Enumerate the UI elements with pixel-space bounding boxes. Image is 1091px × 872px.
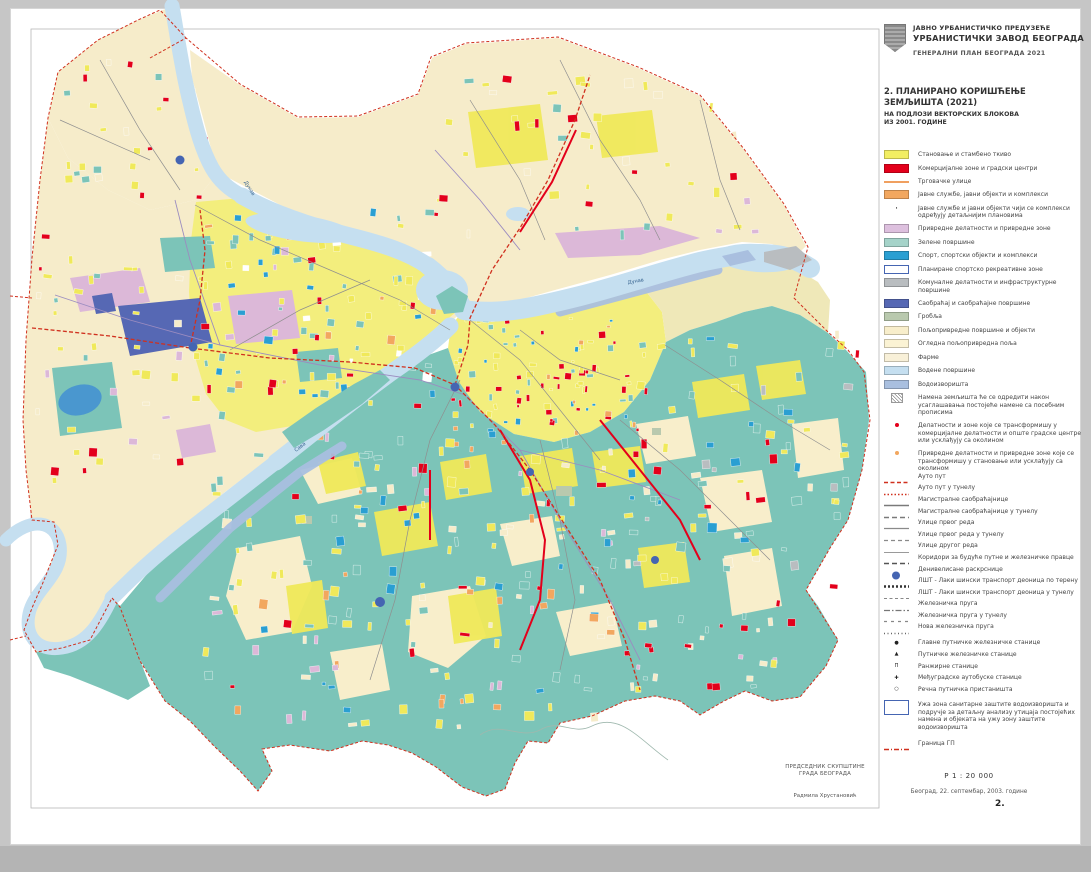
dot-swatch (895, 423, 899, 427)
legend-station-label: Речна путничка пристаништа (918, 686, 1013, 694)
color-swatch (884, 339, 909, 348)
legend-area-label: Планиране спортско рекреативне зоне (918, 265, 1043, 274)
legend-area-item: Комерцијалне зоне и градски центри (884, 164, 1086, 173)
legend-area-item: Комуналне делатности и инфраструктурне п… (884, 278, 1086, 294)
legend-line-label: Железничка пруга (918, 600, 978, 608)
legend-line-label: Коридори за будуће путне и железничке пр… (918, 554, 1074, 562)
legend-line-item: Магистралне саобраћајнице (884, 495, 1086, 504)
legend-area-item: ·Јавне службе и јавни објекти чији се ко… (884, 204, 1086, 220)
legend-gp-boundary-item: Граница ГП (884, 739, 1086, 748)
station-symbol-icon: ○ (884, 685, 909, 694)
dash-dot-line-swatch (884, 600, 909, 609)
map-title-block: 2. ПЛАНИРАНО КОРИШЋЕЊЕ ЗЕМЉИШТА (2021) Н… (884, 86, 1084, 127)
legend-note-item: Намена земљишта ће се одредити након уса… (884, 393, 1086, 417)
legend-area-label: Фарме (918, 353, 939, 362)
color-swatch (884, 150, 909, 159)
legend-area-label: Трговачке улице (918, 177, 971, 186)
color-swatch (884, 224, 909, 233)
color-swatch (884, 190, 909, 199)
legend-area-label: Јавне службе, јавни објекти и комплекси (918, 190, 1048, 199)
station-symbol-icon: ✚ (884, 674, 909, 683)
urban-institute-logo-icon (884, 24, 906, 52)
legend-line-list: Ауто путАуто пут у тунелуМагистралне сао… (884, 472, 1086, 751)
color-swatch (884, 380, 909, 389)
dash-sm-line-swatch (884, 530, 909, 539)
legend-area-item: Јавне службе, јавни објекти и комплекси (884, 190, 1086, 199)
publisher-header: ЈАВНО УРБАНИСТИЧКО ПРЕДУЗЕЋЕ УРБАНИСТИЧК… (884, 24, 1086, 57)
color-swatch (884, 312, 909, 321)
legend-line-label: Железничка пруга у тунелу (918, 612, 1007, 620)
color-swatch (884, 366, 909, 375)
legend-note-label: Привредне делатности и привредне зоне ко… (918, 449, 1086, 473)
legend-area-item: Водоизворишта (884, 380, 1086, 389)
legend-panel: ЈАВНО УРБАНИСТИЧКО ПРЕДУЗЕЋЕ УРБАНИСТИЧК… (884, 24, 1086, 57)
legend-line-item: Нова железничка пруга (884, 623, 1086, 632)
color-swatch (884, 251, 909, 260)
dot-red-icon (884, 421, 909, 430)
legend-line-label: ЛШТ - Лаки шински транспорт деоница у ту… (918, 589, 1074, 597)
legend-area-label: Спорт, спортски објекти и комплекси (918, 251, 1037, 260)
page-number: 2. (995, 799, 1005, 809)
footer-block: Р 1 : 20 000 Београд, 22. септембар, 200… (884, 772, 1054, 795)
map-title-line1: 2. ПЛАНИРАНО КОРИШЋЕЊЕ (884, 86, 1084, 97)
legend-line-label: Нова железничка пруга (918, 623, 994, 631)
signature-title-line2: ГРАДА БЕОГРАДА (766, 771, 884, 778)
color-swatch (884, 326, 909, 335)
map-subtitle-line2: ИЗ 2001. ГОДИНЕ (884, 119, 1084, 127)
dot-orange-icon (884, 449, 909, 458)
legend-line-label: ЛШТ - Лаки шински транспорт деоница по т… (918, 577, 1078, 585)
legend-line-label: Денивелисане раскрснице (918, 566, 1003, 574)
legend-note-label: Намена земљишта ће се одредити након уса… (918, 393, 1086, 417)
legend-area-item: Фарме (884, 353, 1086, 362)
legend-area-item: Гробља (884, 312, 1086, 321)
fine-dash-line-swatch (884, 588, 909, 597)
gp-boundary-swatch (884, 739, 909, 748)
street-line-swatch (884, 181, 909, 183)
legend-area-label: Саобраћај и саобраћајне површине (918, 299, 1030, 308)
protection-zone-swatch (884, 700, 909, 715)
publisher-line1: ЈАВНО УРБАНИСТИЧКО ПРЕДУЗЕЋЕ (913, 24, 1084, 32)
station-symbol-icon: ▲ (884, 650, 909, 659)
legend-area-item: Трговачке улице (884, 177, 1086, 186)
legend-area-label: Водоизворишта (918, 380, 968, 389)
bold-dot-line-swatch (884, 576, 909, 585)
color-swatch (884, 353, 909, 362)
legend-station-label: Путничке железничке станице (918, 651, 1017, 659)
legend-note-label: Делатности и зоне које се трансформишу у… (918, 421, 1086, 445)
legend-area-label: Комерцијалне зоне и градски центри (918, 164, 1037, 173)
legend-line-item: Коридори за будуће путне и железничке пр… (884, 553, 1086, 562)
legend-line-item: Улице другог реда (884, 542, 1086, 551)
legend-area-item: Пољопривредне површине и објекти (884, 326, 1086, 335)
legend-area-label: Комуналне делатности и инфраструктурне п… (918, 278, 1086, 294)
legend-area-label: Привредне делатности и привредне зоне (918, 224, 1051, 233)
legend-note-list: Намена земљишта ће се одредити након уса… (884, 393, 1086, 473)
circle-line-swatch (884, 565, 909, 574)
legend-area-label: Гробља (918, 312, 942, 321)
solid-sm-line-swatch (884, 518, 909, 527)
legend-line-item: Улице првог реда у тунелу (884, 530, 1086, 539)
legend-line-item: ЛШТ - Лаки шински транспорт деоница по т… (884, 576, 1086, 585)
solid-xs-line-swatch (884, 542, 909, 551)
solid-md-line-swatch (884, 495, 909, 504)
legend-line-label: Ауто пут (918, 473, 946, 481)
dash-dark-line-swatch (884, 553, 909, 562)
legend-station-label: Ранжирне станице (918, 663, 978, 671)
color-swatch (884, 238, 909, 247)
gp-boundary-label: Граница ГП (918, 740, 955, 748)
legend-station-item: ●Главне путничке железничке станице (884, 639, 1086, 648)
plan-name: ГЕНЕРАЛНИ ПЛАН БЕОГРАДА 2021 (913, 50, 1084, 57)
legend-note-item: Привредне делатности и привредне зоне ко… (884, 449, 1086, 473)
legend-line-item: Улице првог реда (884, 518, 1086, 527)
legend-line-item: Ауто пут у тунелу (884, 484, 1086, 493)
legend-area-item: Привредне делатности и привредне зоне (884, 224, 1086, 233)
color-swatch (884, 265, 909, 274)
color-swatch (884, 164, 909, 173)
legend-line-item: Ауто пут (884, 472, 1086, 481)
legend-protection-zone-item: Ужа зона санитарне заштите водоизворишта… (884, 700, 1086, 731)
legend-station-item: ✚Међуградске аутобуске станице (884, 674, 1086, 683)
legend-station-label: Међуградске аутобуске станице (918, 674, 1022, 682)
legend-line-label: Ауто пут у тунелу (918, 484, 975, 492)
map-subtitle-line1: НА ПОДЛОЗИ ВЕКТОРСКИХ БЛОКОВА (884, 111, 1084, 119)
legend-area-label: Водене површине (918, 366, 975, 375)
detail-plan-symbol: · (884, 204, 909, 213)
legend-area-item: Становање и стамбено ткиво (884, 150, 1086, 159)
station-symbol-icon: ● (884, 639, 909, 648)
hatch-swatch (891, 393, 903, 403)
legend-area-item: Саобраћај и саобраћајне површине (884, 299, 1086, 308)
legend-area-item: Планиране спортско рекреативне зоне (884, 265, 1086, 274)
legend-area-label: Становање и стамбено ткиво (918, 150, 1011, 159)
legend-area-label: Огледна пољопривредна поља (918, 339, 1017, 348)
legend-line-item: Магистралне саобраћајнице у тунелу (884, 507, 1086, 516)
legend-station-label: Главне путничке железничке станице (918, 639, 1040, 647)
legend-area-list: Становање и стамбено ткивоКомерцијалне з… (884, 150, 1086, 477)
protection-zone-label: Ужа зона санитарне заштите водоизворишта… (918, 700, 1086, 731)
signature-title-line1: ПРЕДСЕДНИК СКУПШТИНЕ (766, 764, 884, 771)
red-dash-line-swatch (884, 472, 909, 481)
legend-area-item: Огледна пољопривредна поља (884, 339, 1086, 348)
legend-line-label: Улице првог реда у тунелу (918, 531, 1004, 539)
legend-station-item: ▲Путничке железничке станице (884, 650, 1086, 659)
dash-md-line-swatch (884, 507, 909, 516)
legend-area-label: Пољопривредне површине и објекти (918, 326, 1035, 335)
station-symbol-icon: П (884, 662, 909, 671)
legend-line-item: Железничка пруга у тунелу (884, 611, 1086, 620)
legend-area-item: Зелене површине (884, 238, 1086, 247)
legend-line-item: Железничка пруга (884, 600, 1086, 609)
legend-station-list: ●Главне путничке железничке станице▲Путн… (884, 639, 1086, 694)
legend-line-label: Магистралне саобраћајнице у тунелу (918, 508, 1038, 516)
legend-line-item: Денивелисане раскрснице (884, 565, 1086, 574)
map-title-line2: ЗЕМЉИШТА (2021) (884, 97, 1084, 108)
signature-name: Радмила Хрустановић (766, 793, 884, 799)
color-swatch (884, 278, 909, 287)
legend-line-label: Магистралне саобраћајнице (918, 496, 1008, 504)
legend-line-label: Улице првог реда (918, 519, 974, 527)
map-scale: Р 1 : 20 000 (884, 772, 1054, 780)
hatch-icon (884, 393, 909, 406)
legend-area-item: Спорт, спортски објекти и комплекси (884, 251, 1086, 260)
legend-station-item: ПРанжирне станице (884, 662, 1086, 671)
legend-station-item: ○Речна путничка пристаништа (884, 685, 1086, 694)
legend-area-label: Јавне службе и јавни објекти чији се ком… (918, 204, 1086, 220)
legend-line-label: Улице другог реда (918, 542, 978, 550)
legend-note-item: Делатности и зоне које се трансформишу у… (884, 421, 1086, 445)
map-date: Београд, 22. септембар, 2003. године (884, 789, 1054, 795)
dot-swatch (895, 451, 899, 455)
legend-area-label: Зелене површине (918, 238, 975, 247)
color-swatch (884, 299, 909, 308)
legend-area-item: Водене површине (884, 366, 1086, 375)
signature-block: ПРЕДСЕДНИК СКУПШТИНЕ ГРАДА БЕОГРАДА Радм… (766, 764, 884, 799)
red-dot-line-swatch (884, 484, 909, 493)
spaced-dash-line-swatch (884, 611, 909, 620)
publisher-line2: УРБАНИСТИЧКИ ЗАВОД БЕОГРАДА (913, 33, 1084, 43)
legend-line-item: ЛШТ - Лаки шински транспорт деоница у ту… (884, 588, 1086, 597)
dotted-line-swatch (884, 623, 909, 632)
